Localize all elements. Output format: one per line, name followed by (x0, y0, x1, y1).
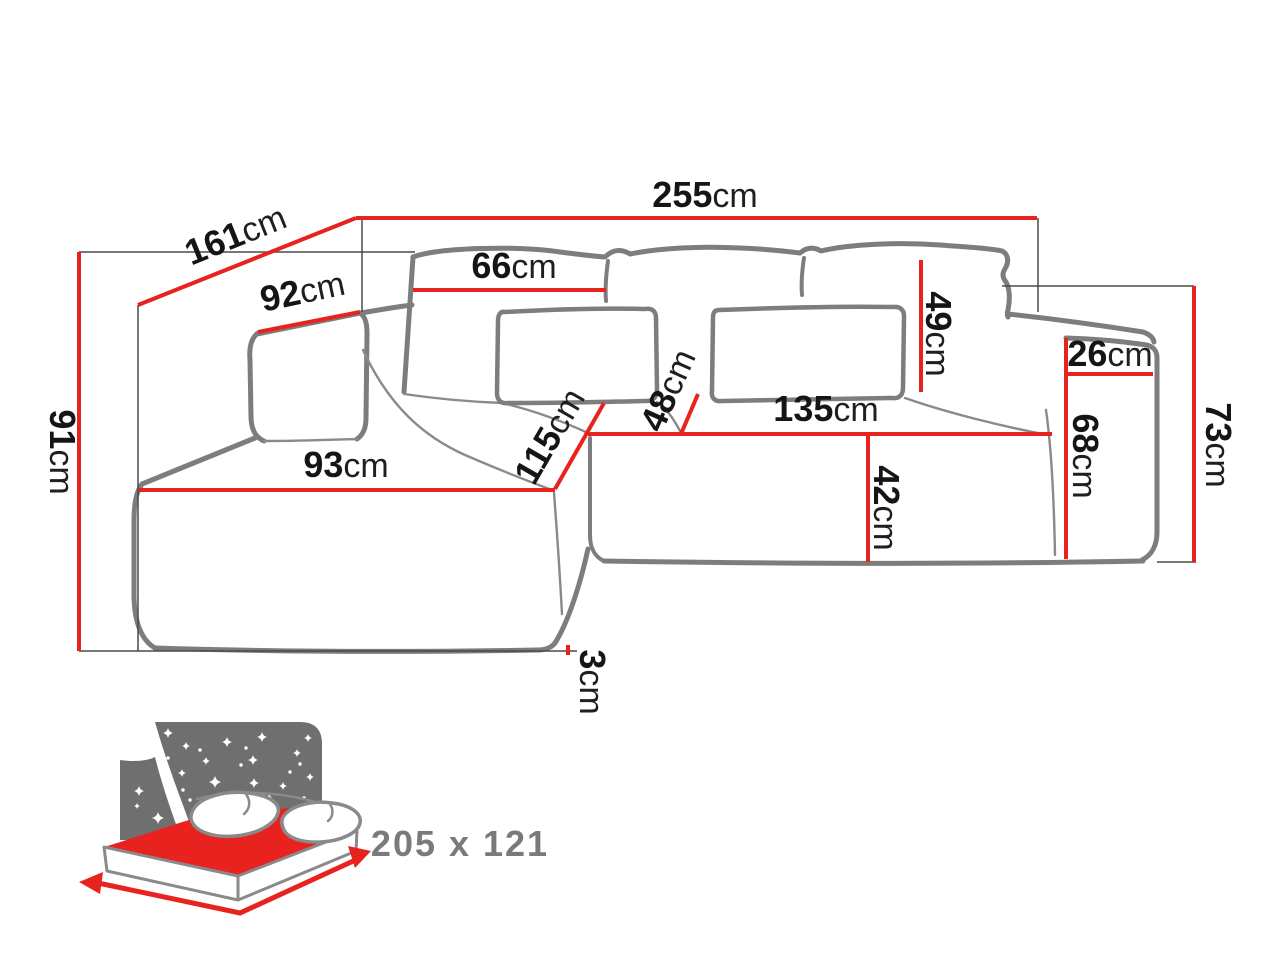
dim-label-height-left: 91cm (42, 409, 83, 494)
dimension-labels: 255cm 161cm 91cm 92cm 66cm 49cm 26cm 73c… (42, 174, 1239, 715)
dim-label-total-width: 255cm (652, 174, 757, 215)
dimension-diagram-page: 255cm 161cm 91cm 92cm 66cm 49cm 26cm 73c… (0, 0, 1280, 960)
dim-label-depth-diagonal: 161cm (179, 196, 292, 274)
dim-label-armrest-top-width: 26cm (1067, 333, 1152, 374)
dim-label-chaise-front-width: 93cm (303, 444, 388, 485)
dim-label-base-clearance: 3cm (572, 649, 613, 714)
seat-pillow-right (712, 307, 904, 401)
dim-label-back-cushion-height: 49cm (918, 291, 959, 376)
dim-label-back-cushion-width: 66cm (471, 245, 556, 286)
corner-sofa-dimension-diagram: 255cm 161cm 91cm 92cm 66cm 49cm 26cm 73c… (0, 0, 1280, 960)
dim-label-armrest-height: 68cm (1065, 413, 1106, 498)
seat-pillow-left (497, 309, 657, 404)
dimension-lines (79, 218, 1194, 655)
dim-label-seat-height: 42cm (866, 465, 907, 550)
dim-label-height-right: 73cm (1198, 402, 1239, 487)
sleeping-function-icon: 205 x 121 (79, 722, 549, 913)
dim-label-corner-back-width: 92cm (256, 262, 348, 320)
sleeping-area-size-label: 205 x 121 (371, 823, 549, 864)
dim-label-seat-front-width: 135cm (773, 388, 878, 429)
